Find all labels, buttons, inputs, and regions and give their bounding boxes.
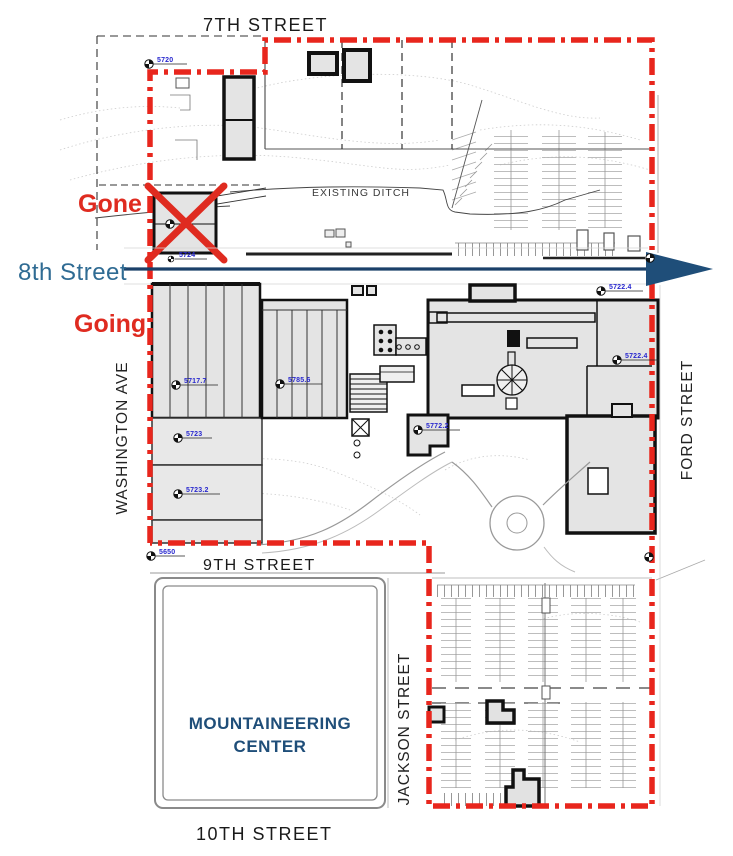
benchmark-icon (597, 287, 605, 295)
south-parking-lot (429, 583, 652, 806)
ford-street-label: FORD STREET (679, 360, 696, 480)
elevation-label: 5723.2 (186, 487, 209, 494)
elevation-label: 5722.4 (609, 284, 632, 291)
benchmark-icon (166, 220, 174, 228)
driveway-curves (256, 452, 590, 572)
elevation-label: 5720 (157, 57, 173, 64)
ninth-street-label: 9TH STREET (203, 557, 316, 574)
elevation-label: 5723 (186, 431, 202, 438)
mountaineering-center-block (155, 578, 388, 808)
gone-label: Gone (78, 190, 142, 218)
elevation-label: 5722.4 (625, 353, 648, 360)
benchmark-icon (276, 380, 284, 388)
jackson-street-label: JACKSON STREET (396, 653, 413, 806)
north-parking-stalls (452, 100, 640, 256)
benchmark-icon (613, 356, 621, 364)
benchmark-icon (168, 256, 174, 262)
site-plan-drawing: 5720 5724 5717.7 5785.6 5723 5723.2 5772… (0, 0, 733, 856)
existing-ditch-label: EXISTING DITCH (312, 187, 410, 199)
site-plan: 5720 5724 5717.7 5785.6 5723 5723.2 5772… (0, 0, 733, 856)
benchmark-icon (646, 254, 654, 262)
benchmark-icon (174, 490, 182, 498)
eighth-street-label: 8th Street (18, 259, 127, 286)
benchmark-icon (645, 553, 653, 561)
benchmark-icon (174, 434, 182, 442)
benchmark-icon (172, 381, 180, 389)
benchmark-icon (414, 426, 422, 434)
tenth-street-label: 10TH STREET (196, 824, 333, 844)
going-label: Going (74, 310, 146, 338)
roundabout (490, 496, 544, 550)
elevation-label: 5650 (159, 549, 175, 556)
arrow-head-icon (646, 252, 713, 286)
benchmark-icon (145, 60, 153, 68)
seventh-street-label: 7TH STREET (203, 15, 328, 35)
elevation-label: 5785.6 (288, 377, 311, 384)
benchmark-icon (147, 552, 155, 560)
elevation-label: 5717.7 (184, 378, 207, 385)
mountaineering-center-label-line1: MOUNTAINEERING (189, 714, 352, 733)
washington-ave-label: WASHINGTON AVE (114, 361, 131, 514)
main-building-complex (152, 284, 658, 543)
elevation-label: 5724 (179, 252, 195, 259)
mountaineering-center-label-line2: CENTER (234, 737, 307, 756)
elevation-label: 5772.2 (426, 423, 449, 430)
